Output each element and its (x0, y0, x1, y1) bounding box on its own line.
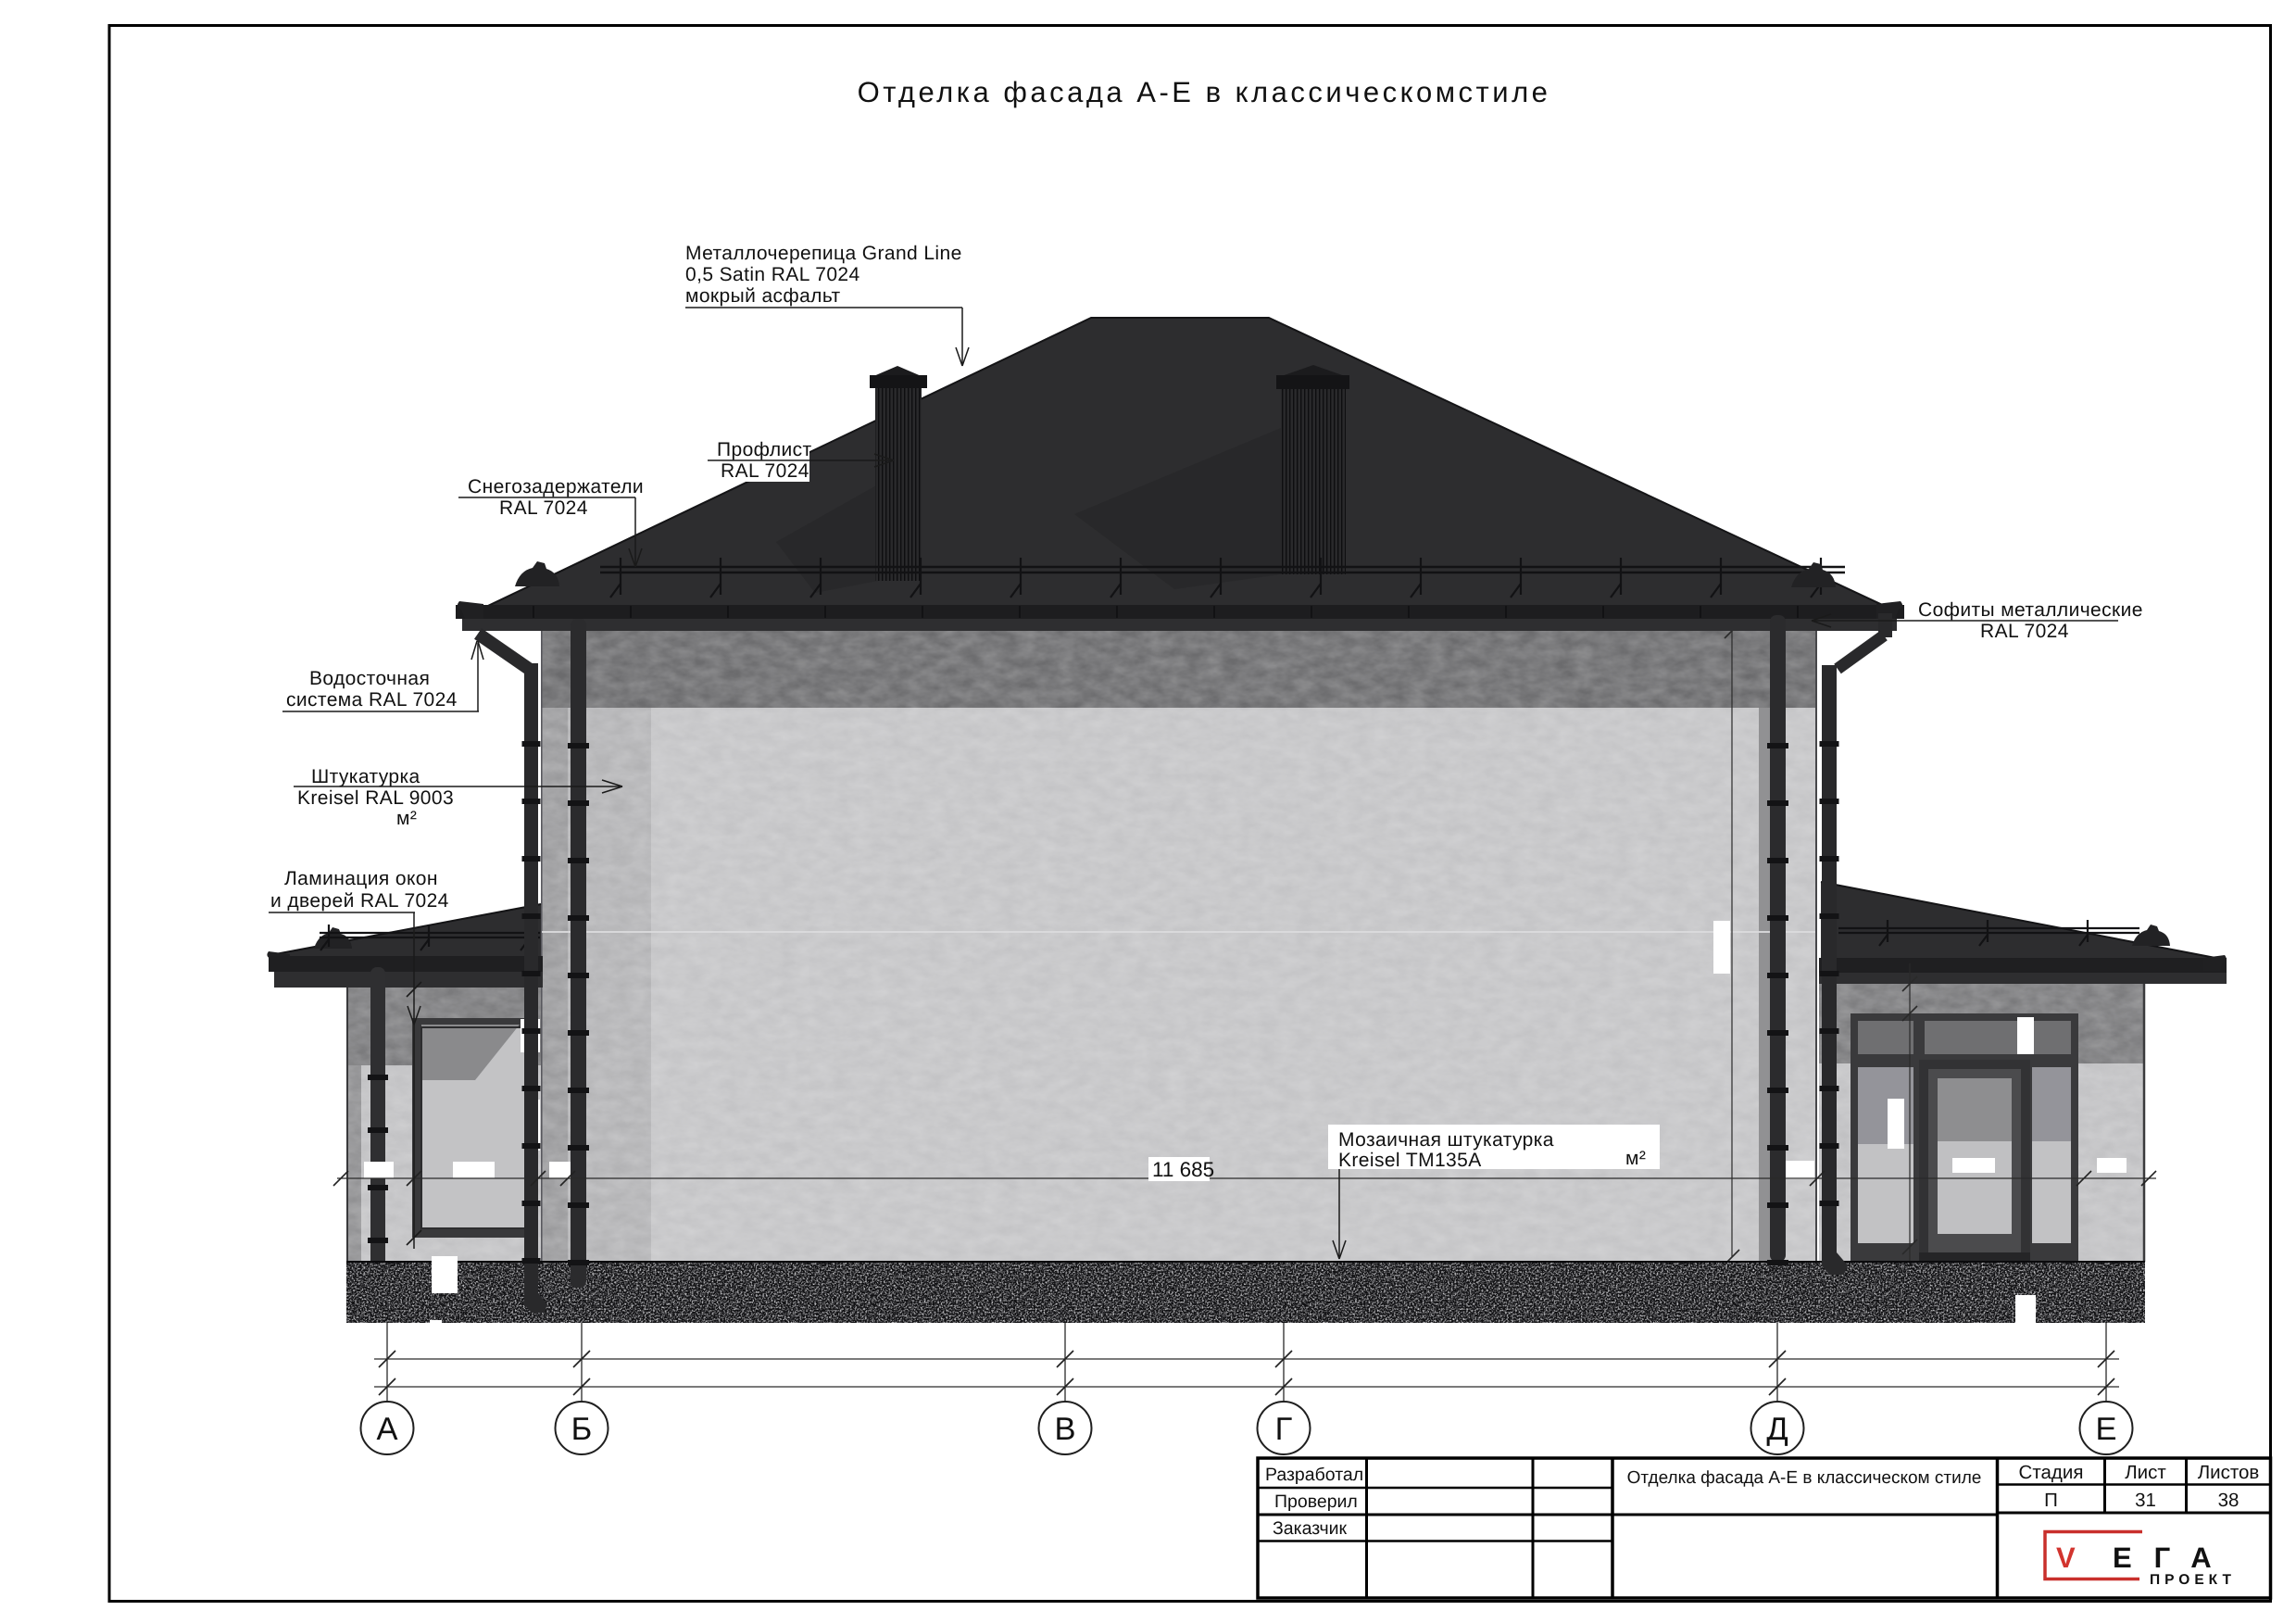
svg-text:Профлист: Профлист (717, 439, 812, 460)
svg-text:38: 38 (2218, 1490, 2240, 1511)
svg-text:Мозаичная штукатурка: Мозаичная штукатурка (1338, 1129, 1554, 1151)
svg-text:Штукатурка: Штукатурка (311, 766, 420, 787)
svg-text:система RAL 7024: система RAL 7024 (286, 689, 458, 711)
svg-text:Снегозадержатели: Снегозадержатели (468, 476, 644, 497)
svg-text:и дверей RAL 7024: и дверей RAL 7024 (270, 890, 449, 912)
svg-text:П: П (2044, 1490, 2058, 1511)
svg-text:Отделка фасада А-Е в классичес: Отделка фасада А-Е в классическомстиле (858, 76, 1551, 108)
svg-text:Kreisel RAL 9003: Kreisel RAL 9003 (297, 787, 454, 809)
svg-text:м²: м² (1625, 1148, 1646, 1169)
svg-text:мокрый асфальт: мокрый асфальт (685, 285, 841, 307)
svg-text:Проверил: Проверил (1274, 1491, 1358, 1512)
svg-text:Лист: Лист (2125, 1462, 2166, 1483)
svg-text:Софиты металлические: Софиты металлические (1918, 599, 2143, 621)
svg-text:В: В (1054, 1412, 1075, 1447)
svg-text:Д: Д (1766, 1412, 1788, 1447)
svg-text:11 685: 11 685 (1152, 1158, 1214, 1181)
svg-text:RAL 7024: RAL 7024 (1980, 621, 2069, 642)
svg-text:Отделка фасада А-Е в классичес: Отделка фасада А-Е в классическом стиле (1627, 1468, 1982, 1488)
svg-text:Г: Г (1275, 1412, 1293, 1447)
svg-text:Е: Е (2095, 1412, 2116, 1447)
svg-text:Металлочерепица Grand Line: Металлочерепица Grand Line (685, 243, 962, 264)
svg-text:А: А (376, 1412, 397, 1447)
svg-text:Листов: Листов (2198, 1462, 2260, 1483)
svg-text:Б: Б (571, 1412, 593, 1447)
svg-text:RAL 7024: RAL 7024 (721, 460, 809, 482)
svg-text:ЕГА: ЕГА (2113, 1541, 2234, 1574)
svg-text:Заказчик: Заказчик (1273, 1518, 1348, 1539)
svg-text:Стадия: Стадия (2019, 1462, 2084, 1483)
svg-text:RAL 7024: RAL 7024 (499, 497, 588, 519)
svg-text:0,5 Satin RAL 7024: 0,5 Satin RAL 7024 (685, 264, 860, 285)
svg-text:Kreisel TM135A: Kreisel TM135A (1338, 1150, 1482, 1171)
svg-text:ПРОЕКТ: ПРОЕКТ (2150, 1572, 2236, 1588)
svg-text:31: 31 (2135, 1490, 2156, 1511)
svg-text:м²: м² (396, 808, 417, 829)
svg-text:V: V (2056, 1541, 2076, 1574)
svg-text:Водосточная: Водосточная (309, 668, 430, 689)
svg-text:Разработал: Разработал (1265, 1465, 1363, 1485)
svg-text:Ламинация окон: Ламинация окон (284, 868, 438, 889)
